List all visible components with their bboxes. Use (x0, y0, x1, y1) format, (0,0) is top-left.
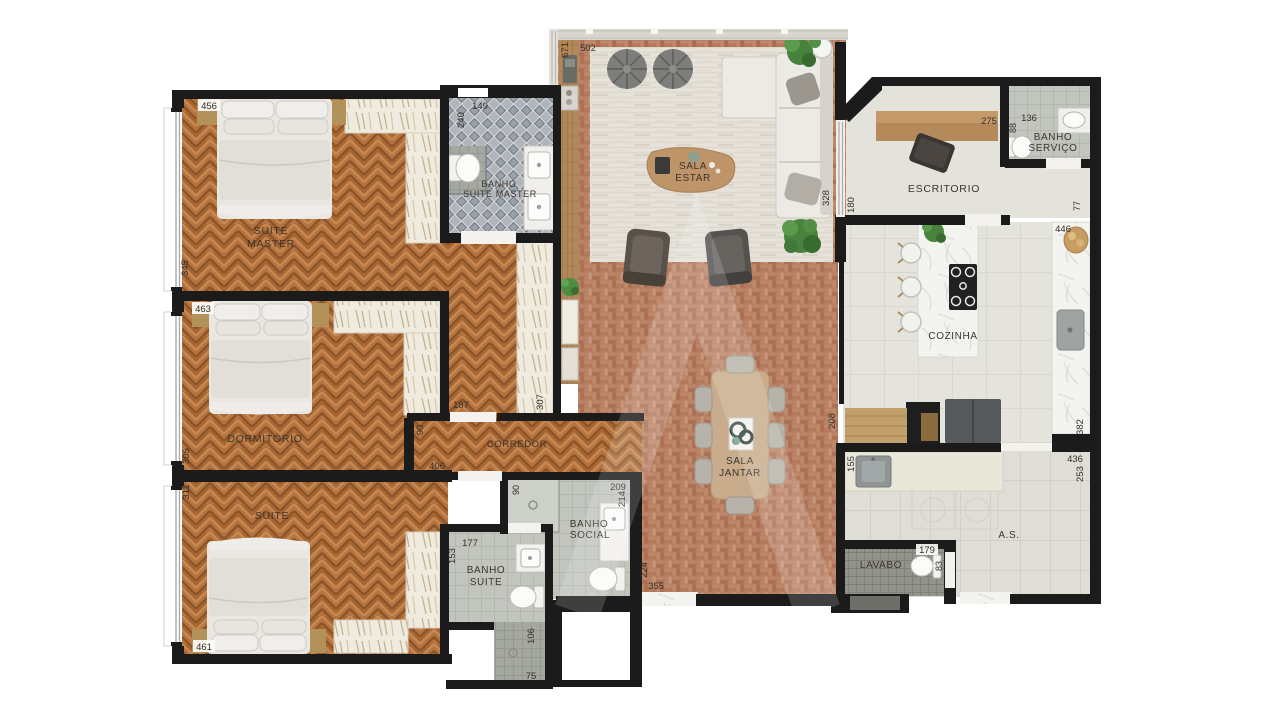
svg-text:BANHO: BANHO (1034, 132, 1073, 143)
svg-text:75: 75 (526, 671, 537, 682)
svg-text:ESCRITORIO: ESCRITORIO (908, 183, 980, 195)
svg-text:208: 208 (827, 413, 838, 429)
svg-text:ESTAR: ESTAR (675, 173, 711, 184)
svg-text:SUITE: SUITE (470, 577, 502, 588)
svg-text:136: 136 (1021, 113, 1037, 124)
svg-text:COZINHA: COZINHA (928, 331, 977, 342)
svg-text:83: 83 (934, 561, 944, 571)
svg-text:436: 436 (1067, 454, 1083, 465)
svg-text:155: 155 (846, 456, 857, 472)
svg-text:240: 240 (456, 112, 467, 128)
svg-text:345: 345 (180, 260, 191, 276)
svg-text:502: 502 (580, 43, 596, 54)
svg-text:311: 311 (181, 484, 192, 499)
svg-text:463: 463 (195, 304, 211, 315)
svg-text:187: 187 (453, 400, 469, 411)
svg-text:177: 177 (462, 538, 478, 549)
svg-text:305: 305 (181, 448, 192, 464)
svg-text:461: 461 (196, 642, 212, 653)
svg-text:456: 456 (201, 101, 217, 112)
svg-text:179: 179 (919, 545, 935, 556)
svg-text:355: 355 (648, 581, 664, 592)
svg-text:SUITE: SUITE (254, 225, 288, 237)
svg-text:SERVIÇO: SERVIÇO (1028, 143, 1077, 154)
svg-text:446: 446 (1055, 224, 1071, 235)
svg-text:SUITE MASTER: SUITE MASTER (463, 189, 537, 199)
svg-text:90: 90 (511, 485, 521, 495)
svg-text:77: 77 (1072, 201, 1082, 211)
svg-text:BANHO: BANHO (481, 179, 516, 189)
svg-text:90: 90 (415, 425, 425, 435)
svg-text:149: 149 (472, 101, 488, 112)
svg-text:BANHO: BANHO (467, 565, 506, 576)
svg-text:A.S.: A.S. (998, 530, 1019, 541)
svg-text:LAVABO: LAVABO (860, 560, 902, 571)
svg-text:MASTER: MASTER (247, 238, 295, 250)
svg-text:CORREDOR: CORREDOR (487, 439, 547, 450)
svg-text:88: 88 (1008, 123, 1018, 133)
svg-text:253: 253 (1075, 466, 1086, 482)
svg-text:106: 106 (526, 628, 537, 644)
svg-text:SUITE: SUITE (255, 510, 289, 522)
svg-text:180: 180 (846, 197, 857, 213)
svg-text:382: 382 (1075, 419, 1086, 435)
svg-text:224: 224 (639, 562, 650, 578)
svg-text:406: 406 (429, 461, 445, 472)
svg-text:SALA: SALA (679, 161, 707, 172)
svg-text:153: 153 (447, 548, 458, 564)
svg-text:328: 328 (821, 190, 832, 206)
svg-text:DORMITÓRIO: DORMITÓRIO (227, 432, 302, 445)
svg-text:275: 275 (981, 116, 997, 127)
svg-text:307: 307 (535, 394, 546, 410)
svg-text:671: 671 (560, 42, 571, 58)
